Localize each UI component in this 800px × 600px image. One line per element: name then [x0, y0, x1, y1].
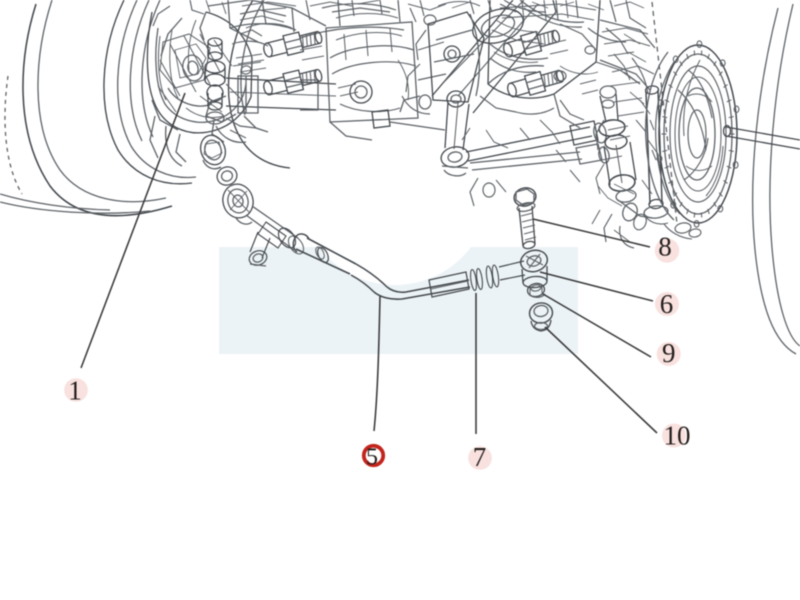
- svg-text:1: 1: [68, 376, 82, 406]
- svg-text:7: 7: [473, 442, 487, 472]
- svg-text:10: 10: [664, 421, 691, 451]
- svg-text:9: 9: [662, 338, 676, 368]
- svg-text:6: 6: [660, 289, 674, 319]
- svg-text:5: 5: [366, 445, 378, 471]
- svg-text:8: 8: [658, 231, 672, 261]
